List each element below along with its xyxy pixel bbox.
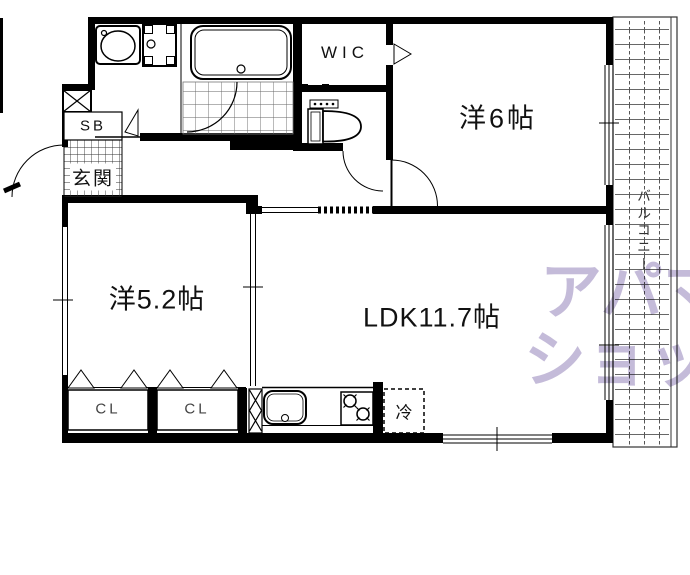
- stove-icon: [341, 392, 373, 425]
- label-refrigerator: 冷: [396, 399, 413, 424]
- closet-door-fold: [157, 370, 183, 388]
- bath-tile-floor: [183, 82, 293, 134]
- closet-door-fold: [68, 370, 94, 388]
- label-walk-in-closet: WIC: [321, 43, 369, 63]
- front-door-arc: [12, 145, 64, 197]
- walls: [0, 17, 613, 443]
- washroom-door: [125, 110, 138, 136]
- floorplan-canvas: SB 玄関 WIC 洋6帖 洋5.2帖 LDK11.7帖 CL CL 冷 バルコ…: [0, 0, 690, 575]
- label-closet-right: CL: [184, 401, 209, 418]
- toilet-icon: [308, 100, 361, 144]
- watermark-line2: ショップ: [524, 330, 690, 392]
- watermark-line1: アパマン: [540, 262, 690, 324]
- label-closet-left: CL: [95, 401, 120, 418]
- bathroom-area: [178, 26, 293, 138]
- label-shoe-box: SB: [80, 118, 106, 135]
- shaft-x-icon: [63, 90, 91, 112]
- closet-door-fold: [121, 370, 147, 388]
- toilet-door-arc: [343, 151, 383, 191]
- room6-door: [392, 160, 438, 206]
- washbasin-icon: [96, 26, 140, 64]
- wic-door: [394, 44, 411, 64]
- front-door-leaf: [4, 184, 20, 191]
- label-entrance: 玄関: [70, 164, 116, 191]
- label-ldk: LDK11.7帖: [363, 296, 501, 335]
- label-western-room-6: 洋6帖: [459, 97, 537, 136]
- pipe-space-icon: [249, 389, 262, 433]
- label-western-room-52: 洋5.2帖: [109, 278, 206, 317]
- washing-machine-icon: [143, 24, 176, 66]
- closet-area: [62, 370, 262, 433]
- closet-door-fold: [211, 370, 237, 388]
- kitchen-sink-icon: [264, 391, 306, 424]
- bathtub-icon: [191, 26, 291, 79]
- label-balcony: バルコニー: [634, 189, 654, 274]
